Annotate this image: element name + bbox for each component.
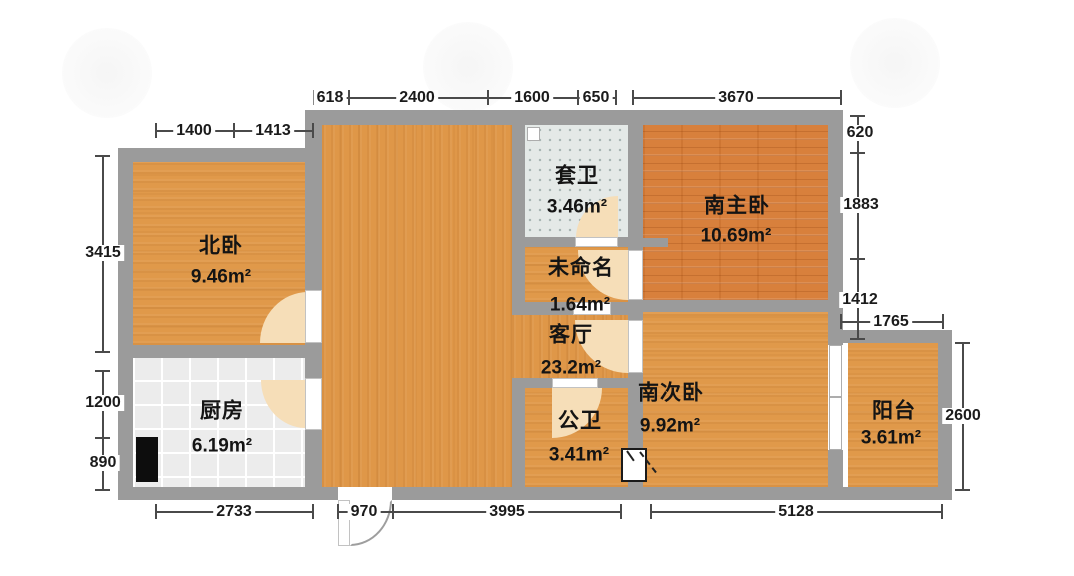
door-leaf-unnamed [628,250,643,300]
dimension-tick [955,342,970,344]
room-area-north-bedroom: 9.46m² [191,268,251,287]
watermark-logo [850,18,940,108]
dim-north-1400: 1400 [173,123,215,139]
dim-bottom-3995: 3995 [486,504,528,520]
room-label-unnamed: 未命名 [548,258,614,279]
door-symbol-leaf [626,450,635,461]
dimension-tick [632,90,634,105]
watermark-logo [62,28,152,118]
dim-left-3415: 3415 [82,245,124,261]
dimension-tick [942,314,944,329]
room-label-public-bath: 公卫 [558,411,602,432]
door-leaf-suite-bath [575,237,618,247]
dimension-tick [941,504,943,519]
dimension-tick [850,338,865,340]
dimension-tick [95,370,110,372]
dimension-tick [95,155,110,157]
dim-left-1200: 1200 [82,395,124,411]
dim-right-1883: 1883 [840,197,882,213]
dimension-line [102,370,104,490]
door-leaf-public-bath [552,378,598,388]
dim-top-618: 618 [314,90,347,106]
dimension-tick [615,90,617,105]
dimension-line [313,97,615,99]
wall-segment [118,148,133,500]
dimension-tick [95,351,110,353]
wall-segment [598,378,628,388]
room-area-unnamed: 1.64m² [550,296,610,315]
dimension-tick [348,90,350,105]
room-area-kitchen: 6.19m² [192,437,252,456]
balcony-window-divider [829,396,842,398]
dimension-tick [850,115,865,117]
wall-segment [643,300,843,312]
dimension-tick [840,90,842,105]
dim-north-1413: 1413 [252,123,294,139]
dimension-tick [233,123,235,138]
room-label-south-master: 南主卧 [704,196,770,217]
dim-balcony-2600: 2600 [942,408,984,424]
door-symbol-dashed [621,448,647,482]
wall-segment [133,345,322,358]
wall-segment [512,378,525,487]
dim-top-650: 650 [580,90,613,106]
wall-segment [643,238,668,247]
room-area-south-second: 9.92m² [640,417,700,436]
room-label-north-bedroom: 北卧 [199,236,243,257]
dim-right-620: 620 [844,125,877,141]
room-label-living: 客厅 [549,325,593,346]
kitchen-flue-block [136,437,158,482]
room-label-kitchen: 厨房 [200,401,244,422]
dimension-tick [95,489,110,491]
dimension-tick [650,504,652,519]
dim-left-890: 890 [87,455,120,471]
floor-plan-canvas: 北卧 9.46m² 厨房 6.19m² 套卫 3.46m² 未命名 1.64m²… [0,0,1074,576]
wall-segment [512,110,525,302]
dimension-tick [840,314,842,329]
dimension-tick [155,123,157,138]
dimension-tick [620,504,622,519]
dimension-tick [337,504,339,519]
room-area-public-bath: 3.41m² [549,446,609,465]
door-leaf-north-bedroom [305,290,322,343]
room-kitchen-floor [133,358,305,487]
room-living-floor [322,125,512,487]
dimension-tick [155,504,157,519]
shower-marker [527,127,540,141]
room-label-balcony: 阳台 [872,401,916,422]
door-leaf-kitchen [305,378,322,430]
wall-segment [118,487,952,500]
dimension-tick [850,258,865,260]
dimension-tick [312,123,314,138]
dimension-tick [95,437,110,439]
dimension-tick [850,152,865,154]
wall-segment [118,148,322,162]
dim-bottom-2733: 2733 [213,504,255,520]
dimension-tick [312,504,314,519]
entry-door-opening [338,487,392,500]
dimension-tick [955,489,970,491]
dim-bottom-970: 970 [348,504,381,520]
room-area-south-master: 10.69m² [701,227,772,246]
wall-segment [618,237,628,247]
dim-balcony-1765: 1765 [870,314,912,330]
room-label-suite-bath: 套卫 [555,166,599,187]
dim-top-1600: 1600 [511,90,553,106]
wall-segment [843,330,952,343]
wall-segment [305,430,322,487]
wall-segment [512,237,575,247]
dim-top-2400: 2400 [396,90,438,106]
wall-segment [628,110,643,250]
wall-segment [305,343,322,378]
dimension-tick [487,90,489,105]
wall-segment [512,378,552,388]
dim-right-1412: 1412 [839,292,881,308]
room-area-suite-bath: 3.46m² [547,198,607,217]
wall-segment [305,110,843,125]
dim-top-3670: 3670 [715,90,757,106]
dim-bottom-5128: 5128 [775,504,817,520]
room-area-living: 23.2m² [541,359,601,378]
wall-segment [628,300,643,320]
room-label-south-second: 南次卧 [638,383,704,404]
wall-segment [828,450,843,487]
room-area-balcony: 3.61m² [861,429,921,448]
door-leaf-south-second [628,320,643,373]
dimension-tick [392,504,394,519]
